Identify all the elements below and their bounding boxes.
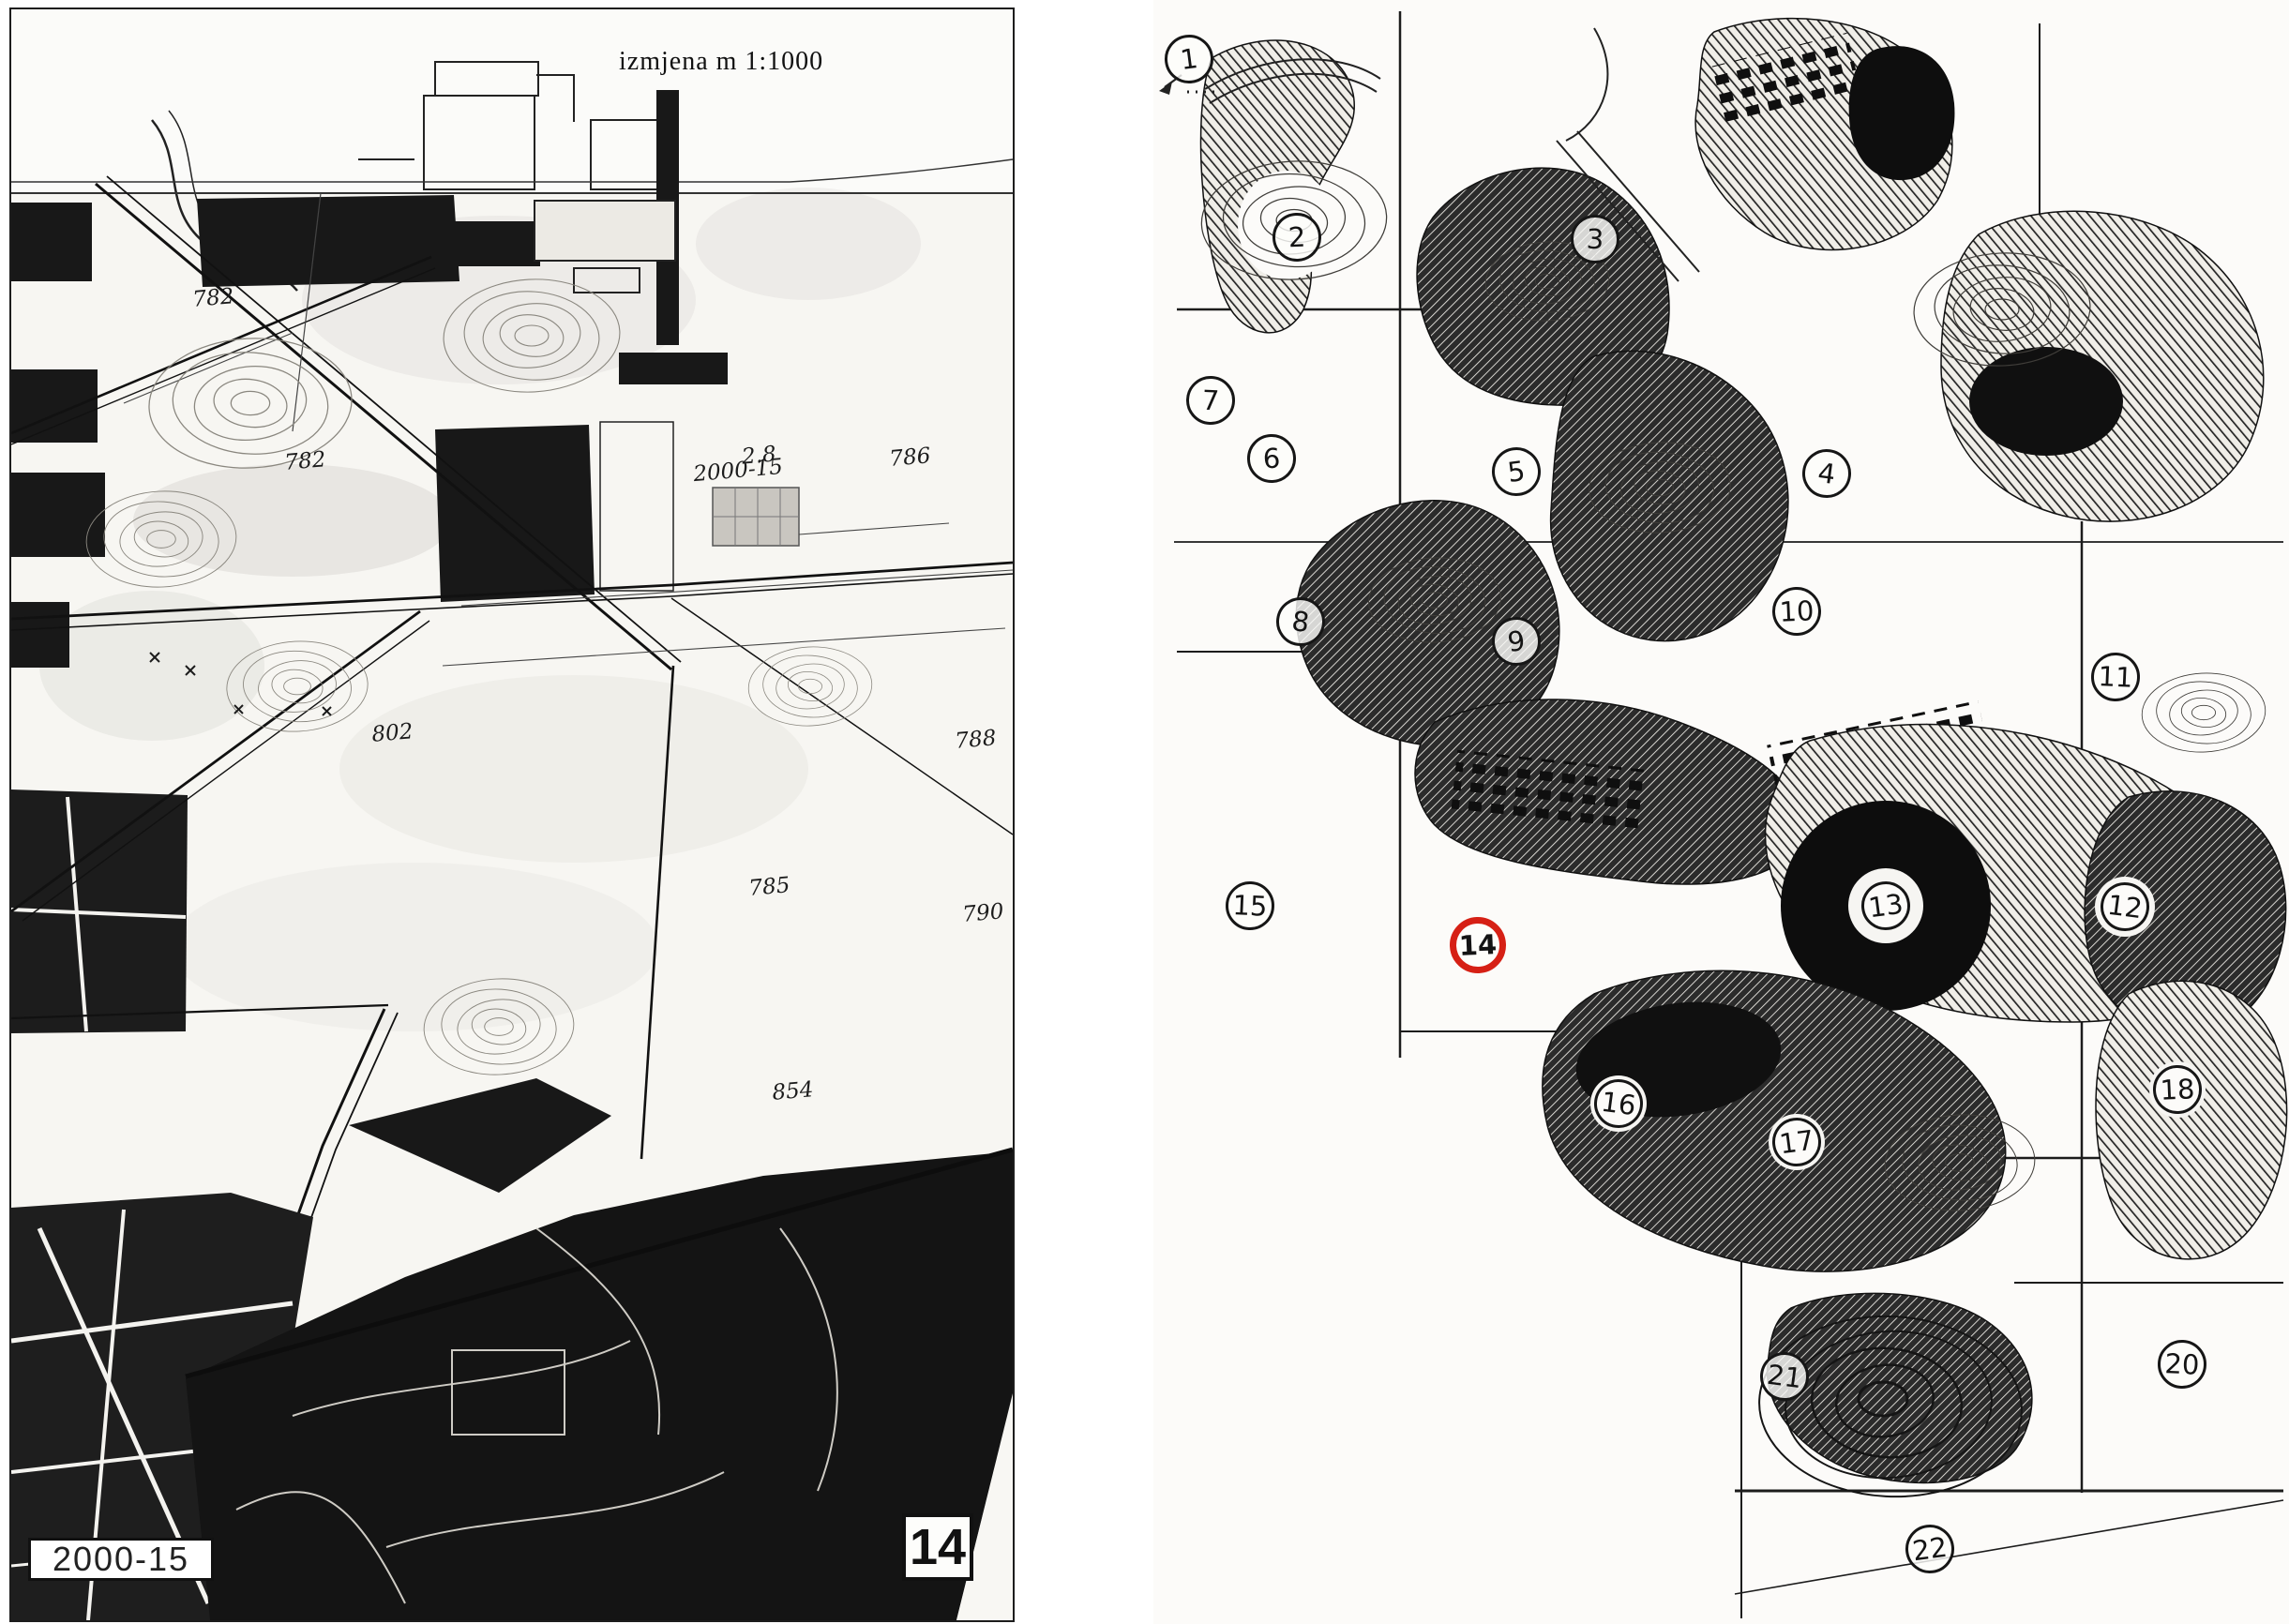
spot-height-label: 802 — [370, 719, 414, 747]
sheet-code-text: 2000-15 — [53, 1540, 189, 1579]
sheet-marker-number: 1 — [1179, 44, 1199, 73]
scanned-map-page: izmjena m 1:1000 7827822.82000-157868027… — [0, 0, 2289, 1624]
sheet-marker-number: 22 — [1911, 1533, 1949, 1565]
index-map-drawing — [1153, 0, 2289, 1624]
sheet-number-badge: 14 — [902, 1513, 973, 1581]
sheet-marker-number: 6 — [1262, 444, 1281, 473]
index-map-panel: 1 2 3 4 5 6 7 8 9 10 — [1153, 0, 2289, 1624]
detail-map-sheet: izmjena m 1:1000 7827822.82000-157868027… — [9, 8, 1015, 1622]
sheet-marker-number: 9 — [1506, 626, 1527, 655]
sheet-marker-number: 20 — [2164, 1350, 2200, 1379]
sheet-marker-number: 11 — [2098, 663, 2133, 692]
sheet-number-text: 14 — [910, 1518, 966, 1576]
spot-height-label: 786 — [888, 444, 931, 472]
spot-height-label: 782 — [283, 447, 326, 475]
sheet-marker-number: 12 — [2106, 891, 2144, 923]
sheet-marker-number: 3 — [1586, 225, 1604, 253]
sheet-marker-number: 10 — [1779, 597, 1815, 626]
spot-height-label: 854 — [771, 1077, 814, 1105]
sheet-marker-number: 21 — [1766, 1361, 1803, 1392]
sheet-code-badge: 2000-15 — [28, 1538, 214, 1581]
sheet-marker-number: 8 — [1290, 607, 1311, 636]
sheet-marker-number: 2 — [1288, 223, 1306, 251]
detail-map-drawing — [11, 9, 1013, 1620]
spot-height-label: 785 — [747, 873, 791, 901]
scale-note: izmjena m 1:1000 — [619, 47, 823, 77]
sheet-marker-number: 16 — [1600, 1088, 1637, 1120]
spot-height-label: 790 — [961, 899, 1004, 927]
sheet-marker-number: 4 — [1816, 459, 1837, 488]
sheet-marker-number: 7 — [1201, 386, 1220, 414]
sheet-marker-number: 14 — [1458, 931, 1498, 960]
sheet-marker-number: 13 — [1867, 890, 1905, 922]
spot-height-label: 788 — [954, 726, 997, 754]
sheet-marker-number: 15 — [1232, 892, 1268, 921]
spot-height-label: 782 — [191, 284, 234, 312]
sheet-marker-number: 5 — [1506, 457, 1527, 486]
sheet-marker-number: 18 — [2160, 1075, 2195, 1105]
sheet-marker-number: 17 — [1778, 1126, 1815, 1158]
